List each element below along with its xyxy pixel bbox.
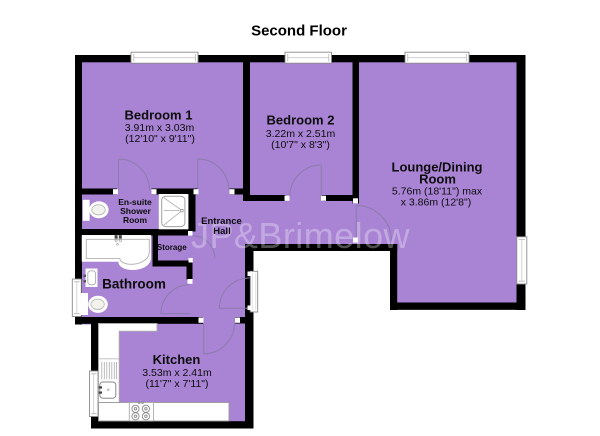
svg-text:3.91m x 3.03m: 3.91m x 3.03m	[125, 122, 195, 134]
svg-text:5.76m (18'11") max: 5.76m (18'11") max	[392, 185, 483, 197]
svg-text:Bedroom 2: Bedroom 2	[267, 113, 335, 128]
svg-text:Kitchen: Kitchen	[153, 352, 201, 367]
svg-text:3.53m x 2.41m: 3.53m x 2.41m	[142, 367, 212, 379]
svg-text:Room: Room	[419, 172, 456, 187]
svg-text:(11'7" x 7'11"): (11'7" x 7'11")	[145, 378, 208, 390]
svg-text:Storage: Storage	[157, 243, 187, 252]
svg-text:Bedroom 1: Bedroom 1	[125, 108, 193, 123]
svg-text:(12'10" x 9'11"): (12'10" x 9'11")	[125, 133, 195, 145]
svg-text:Hall: Hall	[213, 226, 230, 237]
svg-text:3.22m x 2.51m: 3.22m x 2.51m	[266, 128, 336, 140]
svg-text:Room: Room	[123, 215, 148, 225]
svg-text:Bathroom: Bathroom	[102, 276, 166, 291]
svg-text:Second Floor: Second Floor	[251, 23, 347, 40]
svg-text:(10'7" x 8'3"): (10'7" x 8'3")	[271, 139, 330, 151]
svg-text:x 3.86m (12'8"): x 3.86m (12'8")	[401, 197, 472, 209]
